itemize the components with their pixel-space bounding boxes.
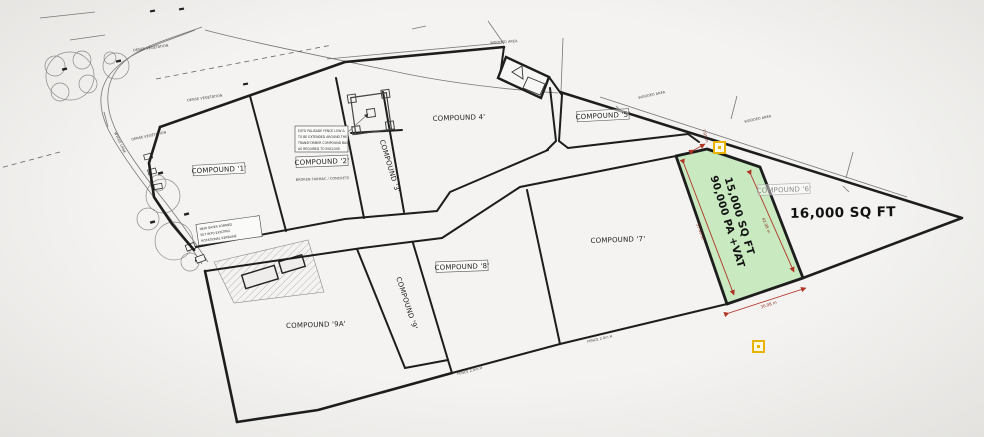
dense-vegetation-label-1: DENSE VEGETATION [133, 43, 169, 52]
wooded-area-label-2: WOODED AREA [638, 90, 666, 100]
tree-cluster-large [45, 51, 129, 101]
site-plan-page: EXTG PALISADE FENCE LOW & TO BE EXTENDED… [0, 0, 984, 437]
entrance-hatched-zone [214, 240, 324, 303]
divider-7-8 [527, 190, 560, 344]
palisade-note-line-4: AS REQUIRED TO ENCLOSE. [298, 147, 341, 151]
dense-vegetation-label-2: DENSE VEGETATION [131, 130, 167, 141]
boundary-south-fence [448, 304, 727, 373]
boundary-lines [149, 47, 962, 422]
compound-5-south-edge [568, 134, 699, 148]
compound-1-label: COMPOUND '1' [191, 165, 246, 176]
wooded-area-label-1: WOODED AREA [490, 39, 518, 45]
compound-2-surface-note: BROKEN TARMAC / CONCRETE [296, 176, 350, 182]
fence-label-2: FENCE 2.0m H [587, 334, 613, 344]
fence-labels: FENCE 2.0m H FENCE 2.0m H [457, 334, 613, 376]
compound-9-east-edge [413, 243, 448, 360]
boundary-9a-south [237, 373, 452, 422]
compound-5-west-edge [559, 95, 568, 148]
yellow-marker-top[interactable] [714, 142, 725, 153]
divider-1-2 [250, 96, 286, 231]
right-plot-sqft: 16,000 SQ FT [790, 204, 897, 222]
gates-note-box: NEW GATES FORMED SET INTO EXISTING ROTAT… [196, 216, 262, 246]
wooded-area-label-3: WOODED AREA [744, 114, 772, 124]
yellow-marker-bottom[interactable] [753, 341, 764, 352]
palisade-note-line-2: TO BE EXTENDED AROUND THE [297, 135, 347, 139]
compound-9a-label: COMPOUND '9A' [286, 320, 346, 330]
compound-3-label: COMPOUND '3' [378, 139, 402, 194]
top-building [498, 57, 549, 98]
compound-4-east-edge [547, 88, 556, 150]
site-plan-canvas: EXTG PALISADE FENCE LOW & TO BE EXTENDED… [0, 0, 984, 437]
compound-4-label: COMPOUND 4' [433, 113, 486, 123]
dim-south: 30.08 m [760, 300, 777, 310]
compound-5-label: COMPOUND '5' [575, 111, 630, 122]
dense-vegetation-label-3: DENSE VEGETATION [187, 93, 223, 102]
compound-7-label: COMPOUND '7' [590, 235, 645, 245]
palisade-note-line-1: EXTG PALISADE FENCE LOW & [298, 129, 345, 133]
compound-9-label: COMPOUND '9' [394, 276, 419, 331]
vegetation-labels: DENSE VEGETATION DENSE VEGETATION DENSE … [131, 39, 772, 142]
palisade-note-line-3: TRANSFORMER COMPOUND BASE [297, 141, 350, 145]
